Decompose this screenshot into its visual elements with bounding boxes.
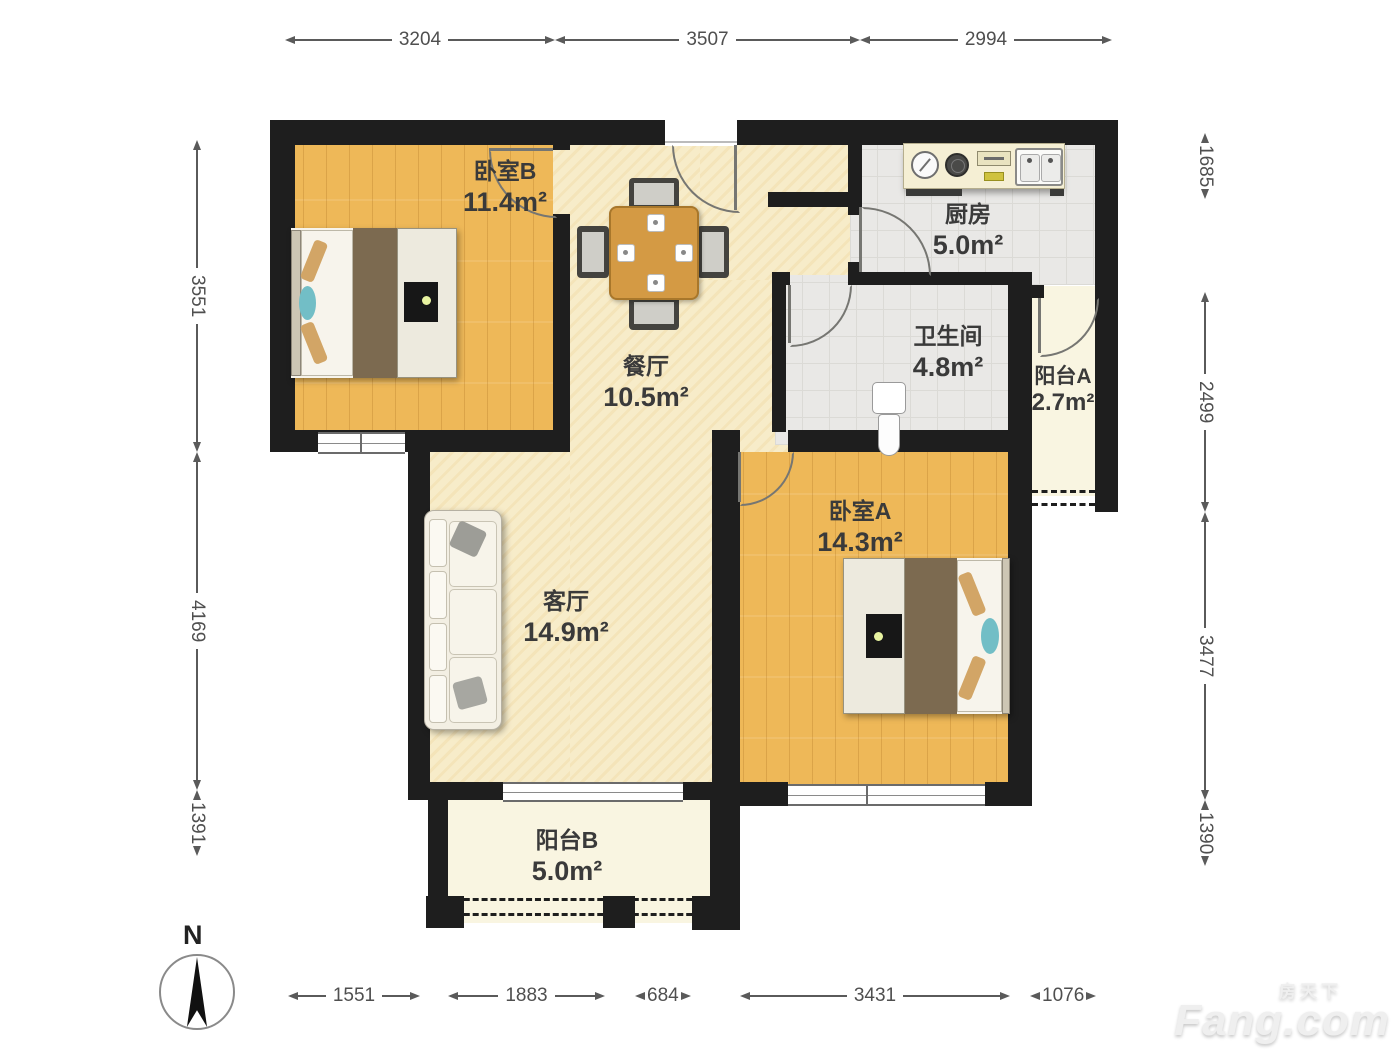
room-label-balcony-a: 阳台A 2.7m² [1032, 364, 1095, 418]
dim-value: 684 [645, 985, 681, 1007]
tv-panel [404, 282, 438, 322]
stove-pot-icon [945, 153, 969, 177]
dim-line [555, 995, 595, 997]
window-glass-line [788, 795, 985, 796]
dim-bottom-1: 1551 [288, 986, 420, 1006]
dim-value: 3551 [186, 268, 208, 324]
watermark-logo: Fang.com [1174, 996, 1390, 1046]
dim-bottom-3: 684 [635, 986, 710, 1006]
wall-living-bedroom-a-divider [712, 430, 740, 800]
room-area: 2.7m² [1032, 389, 1095, 418]
room-area: 11.4m² [463, 186, 547, 218]
bedroom-b-bed [291, 228, 457, 378]
floorplan-canvas: 卧室B 11.4m² 餐厅 10.5m² 厨房 5.0m² 卫生间 4.8m² … [0, 0, 1400, 1050]
arrow-up-icon [193, 140, 201, 150]
bed-headboard [1002, 558, 1010, 714]
wall-bathroom-left [772, 285, 786, 432]
arrow-up-icon [1201, 512, 1209, 522]
balcony-a-railing-dash-2 [1032, 503, 1095, 506]
room-label-dining: 餐厅 10.5m² [603, 353, 689, 413]
window-mullion [360, 434, 362, 452]
window-mullion [866, 786, 868, 804]
wall-bedroom-b-right-lower [553, 214, 570, 432]
tv-light [874, 632, 883, 641]
place-setting [617, 244, 635, 262]
washing-machine-icon [911, 151, 939, 179]
arrow-down-icon [1201, 189, 1209, 199]
dining-chair [697, 226, 729, 278]
arrow-left-icon [860, 36, 870, 44]
dim-value: 3507 [679, 29, 735, 51]
arrow-down-icon [1201, 790, 1209, 800]
dining-chair [629, 296, 679, 330]
room-name: 阳台B [532, 827, 603, 855]
sofa-back-cushion [429, 519, 447, 567]
dim-line [736, 39, 850, 41]
dim-line [1204, 522, 1206, 628]
toilet [872, 382, 906, 458]
chair-seat [702, 232, 724, 272]
wall-bedroom-b-right-upper [553, 120, 570, 150]
sofa-back-cushion [429, 571, 447, 619]
dim-line [298, 995, 326, 997]
room-name: 卧室A [817, 498, 903, 526]
sofa-seat-cushion [449, 589, 497, 655]
arrow-right-icon [1102, 36, 1112, 44]
chair-seat [634, 183, 674, 205]
dim-line [565, 39, 679, 41]
kitchen-counter [903, 143, 1065, 189]
bedroom-a-window [788, 784, 985, 806]
dim-top-3: 2994 [860, 30, 1112, 50]
dim-value: 1390 [1194, 810, 1216, 856]
plate-dot [681, 250, 686, 255]
wall-bedroom-a-top [788, 430, 1032, 452]
dim-value: 3204 [392, 29, 448, 51]
arrow-right-icon [545, 36, 555, 44]
dim-top-1: 3204 [285, 30, 555, 50]
plate-dot [653, 220, 658, 225]
arrow-right-icon [681, 992, 691, 1000]
arrow-down-icon [1201, 856, 1209, 866]
arrow-right-icon [1086, 992, 1096, 1000]
dim-bottom-2: 1883 [448, 986, 605, 1006]
bedroom-a-door-leaf [738, 452, 741, 502]
faucet-dot [1048, 158, 1053, 163]
sink-basin [1041, 154, 1061, 182]
wall-balcony-a-top-stub [1032, 285, 1044, 298]
room-name: 卫生间 [913, 323, 984, 351]
arrow-up-icon [1201, 292, 1209, 302]
bedroom-b-door-leaf [489, 148, 553, 151]
tv-panel [866, 614, 902, 658]
arrow-left-icon [740, 992, 750, 1000]
sink-basin [1020, 154, 1040, 182]
dim-line [382, 995, 410, 997]
dim-right-1: 1685 [1194, 133, 1216, 292]
arrow-left-icon [1030, 992, 1040, 1000]
arrow-left-icon [288, 992, 298, 1000]
arrow-up-icon [1201, 800, 1209, 810]
under-counter-shadow [1050, 189, 1064, 196]
window-glass-line [503, 792, 683, 793]
sofa-back-cushion [429, 623, 447, 671]
dim-line [1204, 430, 1206, 502]
bedroom-b-window [318, 432, 405, 454]
dim-value: 3431 [847, 985, 903, 1007]
pot-inner-ring [951, 159, 965, 173]
dim-right-2: 2499 [1194, 292, 1216, 512]
wall-bathroom-top-left [772, 272, 790, 285]
dim-value: 4169 [186, 593, 208, 649]
washer-dial [919, 158, 931, 172]
dim-value: 3477 [1194, 628, 1216, 684]
bed-blanket [905, 558, 957, 714]
dim-left-2: 4169 [186, 452, 208, 790]
room-label-kitchen: 厨房 5.0m² [933, 201, 1004, 261]
dim-line [458, 995, 498, 997]
kitchen-door-leaf [859, 207, 862, 272]
arrow-down-icon [193, 846, 201, 856]
dim-value: 2499 [1194, 374, 1216, 430]
room-area: 5.0m² [933, 229, 1004, 261]
dim-bottom-5: 1076 [1030, 986, 1105, 1006]
dim-value: 1685 [1194, 143, 1216, 189]
bed-round-cushion [981, 618, 999, 654]
control-panel-icon [984, 172, 1004, 181]
arrow-down-icon [1201, 502, 1209, 512]
wall-living-bottom-right [683, 782, 712, 800]
arrow-right-icon [595, 992, 605, 1000]
arrow-up-icon [1201, 133, 1209, 143]
living-balcony-slider [503, 782, 683, 802]
dim-top-2: 3507 [555, 30, 860, 50]
bedroom-a-bed [843, 558, 1010, 714]
arrow-left-icon [555, 36, 565, 44]
dim-value: 2994 [958, 29, 1014, 51]
dining-chair [577, 226, 609, 278]
wall-bedroom-a-bottom-left [740, 782, 788, 806]
entrance-threshold-line [665, 141, 737, 143]
dim-line [870, 39, 958, 41]
room-label-bathroom: 卫生间 4.8m² [913, 323, 984, 383]
dim-line [750, 995, 847, 997]
place-setting [647, 274, 665, 292]
dim-value: 1883 [498, 985, 554, 1007]
dim-value: 1391 [186, 800, 208, 846]
balcony-a-door-leaf [1038, 298, 1041, 353]
dim-line [1204, 302, 1206, 374]
dim-line [1014, 39, 1102, 41]
room-area: 14.9m² [523, 616, 609, 648]
under-counter-shadow [906, 189, 962, 196]
dim-line [196, 150, 198, 268]
arrow-left-icon [285, 36, 295, 44]
living-room-sofa [424, 510, 502, 730]
tv-light [422, 296, 431, 305]
balcony-b-pier-left [426, 896, 464, 928]
arrow-right-icon [410, 992, 420, 1000]
microwave-label-bar [984, 157, 1004, 160]
room-label-bedroom-a: 卧室A 14.3m² [817, 498, 903, 558]
arrow-left-icon [635, 992, 645, 1000]
arrow-up-icon [193, 452, 201, 462]
dim-line [295, 39, 392, 41]
room-label-bedroom-b: 卧室B 11.4m² [463, 158, 547, 218]
place-setting [675, 244, 693, 262]
dim-left-1: 3551 [186, 140, 208, 452]
balcony-b-pier-right [692, 896, 740, 930]
double-sink-icon [1015, 148, 1063, 186]
dining-table [609, 206, 699, 300]
faucet-dot [1027, 158, 1032, 163]
dim-line [903, 995, 1000, 997]
microwave-icon [977, 151, 1011, 166]
wall-right-outer [1095, 120, 1118, 512]
wall-living-bottom-left [408, 782, 503, 800]
dim-line [196, 324, 198, 442]
arrow-left-icon [448, 992, 458, 1000]
room-name: 餐厅 [603, 353, 689, 381]
wall-balcony-a-bottom-block [1008, 486, 1032, 512]
chair-seat [582, 232, 604, 272]
balcony-b-railing-dash-2 [446, 913, 710, 916]
room-area: 10.5m² [603, 381, 689, 413]
dim-right-4: 1390 [1194, 800, 1216, 928]
place-setting [647, 214, 665, 232]
plate-dot [623, 250, 628, 255]
arrow-right-icon [850, 36, 860, 44]
room-name: 客厅 [523, 588, 609, 616]
wall-kitchen-left [848, 120, 862, 215]
dim-value: 1076 [1040, 985, 1086, 1007]
room-name: 厨房 [933, 201, 1004, 229]
dim-line [196, 649, 198, 780]
plate-dot [653, 280, 658, 285]
dim-line [196, 462, 198, 593]
bed-blanket [353, 228, 397, 378]
room-area: 5.0m² [532, 855, 603, 887]
chair-seat [634, 302, 674, 324]
entrance-door-leaf [734, 145, 737, 210]
bathroom-door-leaf [788, 285, 791, 343]
wall-hall-stub [768, 192, 850, 207]
dim-right-3: 3477 [1194, 512, 1216, 800]
wall-top-right [737, 120, 1118, 145]
wall-bathroom-balcony-a-divider [1008, 272, 1032, 806]
wall-bedroom-a-bottom-right [985, 782, 1032, 806]
dim-value: 1551 [326, 985, 382, 1007]
arrow-up-icon [193, 790, 201, 800]
dim-left-3: 1391 [186, 790, 208, 928]
site-watermark: 房天下 Fang.com [1174, 977, 1390, 1046]
arrow-down-icon [193, 442, 201, 452]
arrow-down-icon [193, 780, 201, 790]
balcony-b-pier-mid [603, 896, 635, 928]
compass-n-label: N [183, 920, 203, 951]
balcony-b-railing-dash-1 [446, 898, 710, 901]
room-label-living: 客厅 14.9m² [523, 588, 609, 648]
compass: N [155, 920, 245, 1040]
dining-set [575, 176, 730, 332]
room-name: 卧室B [463, 158, 547, 186]
room-label-balcony-b: 阳台B 5.0m² [532, 827, 603, 887]
room-area: 4.8m² [913, 351, 984, 383]
dim-line [1204, 684, 1206, 790]
toilet-bowl [878, 414, 900, 456]
dim-bottom-4: 3431 [740, 986, 1010, 1006]
bed-round-cushion [299, 286, 316, 320]
toilet-tank [872, 382, 906, 414]
room-area: 14.3m² [817, 526, 903, 558]
sofa-back-cushion [429, 675, 447, 723]
arrow-right-icon [1000, 992, 1010, 1000]
room-name: 阳台A [1032, 364, 1095, 389]
balcony-a-railing-dash-1 [1032, 490, 1095, 493]
dim-line [448, 39, 545, 41]
wall-top-left [270, 120, 665, 145]
